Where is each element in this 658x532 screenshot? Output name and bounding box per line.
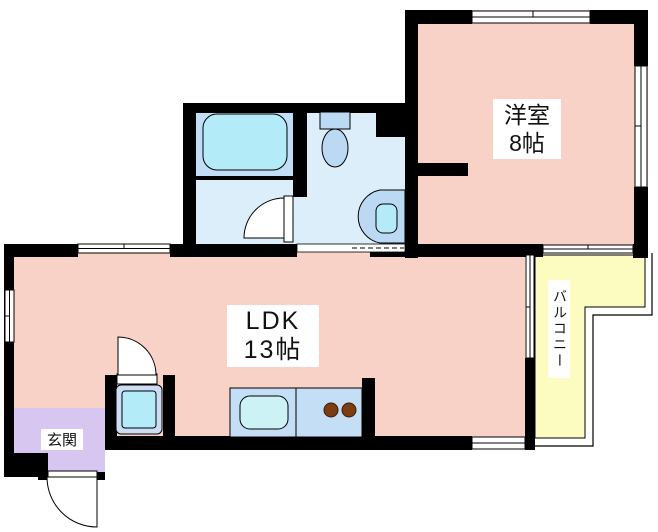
sanitary-entry-threshold [297, 244, 405, 252]
ldk-room-name: LDK [246, 307, 301, 336]
room-label-western: 洋室 8帖 [493, 99, 561, 159]
ldk-room-size: 13帖 [244, 336, 303, 365]
toilet-icon [320, 112, 350, 167]
bathtub-icon [203, 114, 287, 170]
genkan-room-name: 玄関 [47, 429, 77, 450]
ldk-bottom-window [472, 437, 525, 449]
room-label-ldk: LDK 13帖 [227, 305, 319, 367]
ldk-left-window [5, 290, 14, 342]
washroom-door-leaf [284, 196, 293, 242]
ldk-top-window [78, 244, 170, 253]
washbasin-icon [358, 190, 405, 243]
washer-tub [122, 391, 156, 428]
room-label-genkan: 玄関 [41, 429, 83, 450]
room-label-balcony: バルコニー [548, 280, 570, 378]
floor-plan-svg [0, 0, 658, 532]
western-balcony-window [543, 245, 633, 253]
western-top-window [472, 11, 590, 23]
washbasin-bowl [376, 204, 397, 233]
entrance-door-swing-icon [47, 477, 97, 527]
washing-machine-pan-icon [116, 385, 162, 434]
kitchen-unit [230, 388, 362, 437]
western-right-window [635, 66, 647, 187]
toilet-bowl [322, 129, 348, 167]
floor-plan: 洋室 8帖 LDK 13帖 玄関 バルコニー [0, 0, 658, 532]
western-room-name: 洋室 [504, 101, 550, 129]
toilet-tank [320, 112, 350, 129]
ldk-balcony-sliding-door [526, 255, 534, 358]
washroom-doorway-floor [293, 197, 307, 244]
western-room-size: 8帖 [509, 129, 545, 157]
kitchen-sink-icon [240, 396, 288, 429]
